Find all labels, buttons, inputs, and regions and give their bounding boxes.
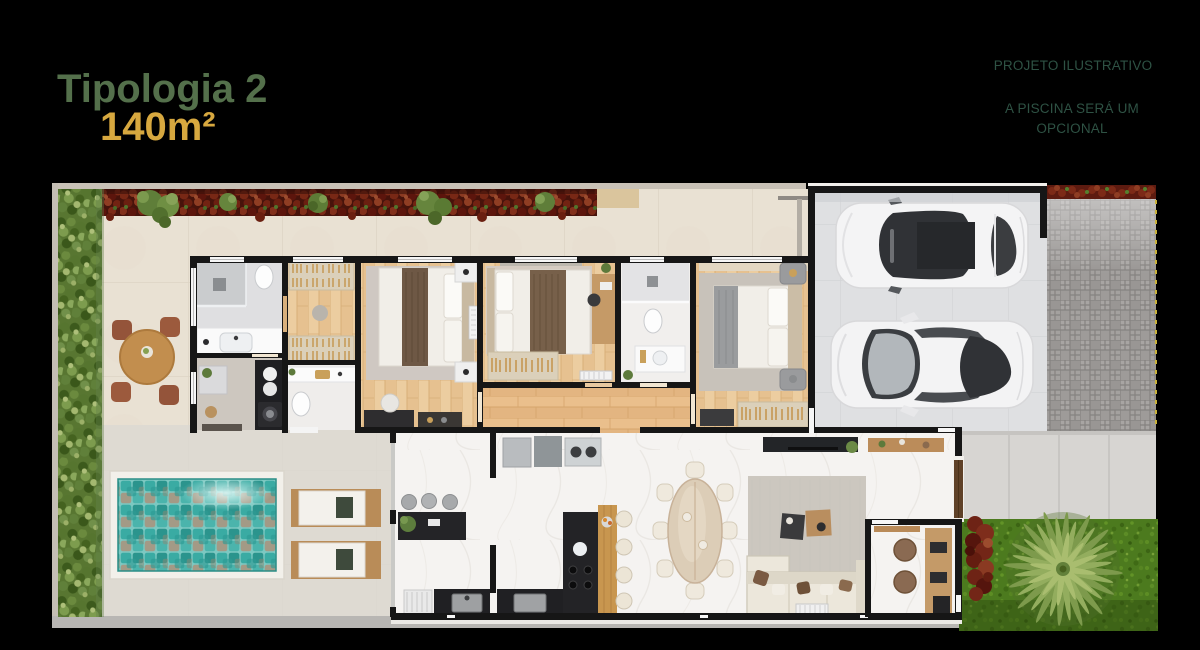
svg-text:PROJETO ILUSTRATIVO: PROJETO ILUSTRATIVO <box>994 58 1153 73</box>
svg-text:140m²: 140m² <box>100 105 216 149</box>
svg-text:A PISCINA SERÁ UM: A PISCINA SERÁ UM <box>1005 101 1139 116</box>
svg-text:OPCIONAL: OPCIONAL <box>1036 121 1108 136</box>
